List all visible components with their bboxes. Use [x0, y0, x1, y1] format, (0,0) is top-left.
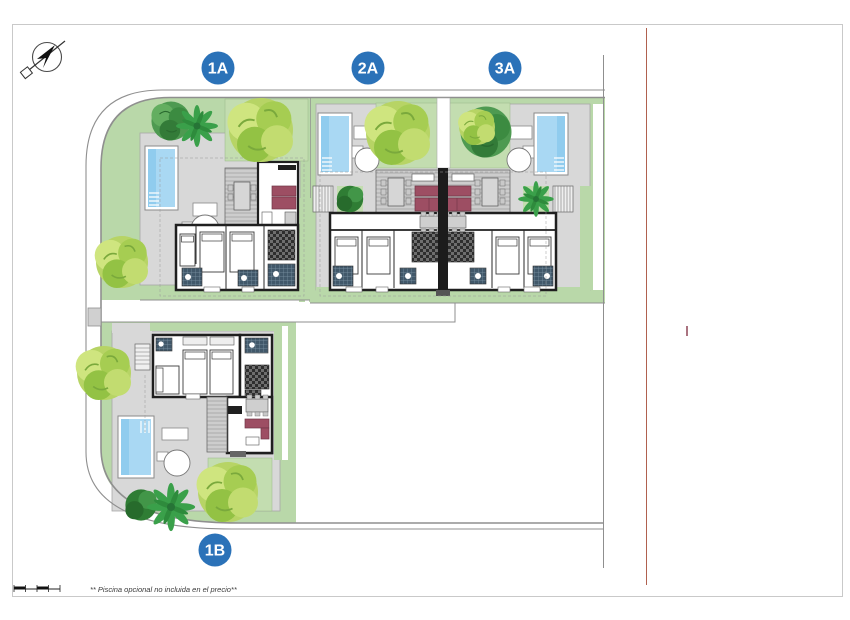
bush-icon [337, 186, 363, 212]
pool-1b [118, 416, 154, 478]
site-plan-drawing: 1A 2A 3A 1B ** Piscina opcional no inclu… [0, 0, 850, 620]
unit-badge-3a-label: 3A [495, 61, 516, 78]
unit-badge-2a-label: 2A [358, 61, 379, 78]
pool-1a [145, 146, 178, 210]
palm-tree-icon [147, 483, 195, 531]
party-wall [436, 98, 450, 296]
entrance-pillar [88, 308, 101, 326]
unit-badge-1b: 1B [199, 534, 232, 567]
footnote: ** Piscina opcional no incluida en el pr… [90, 585, 238, 594]
palm-tree-icon [176, 105, 218, 147]
site-plan-page: 1A 2A 3A 1B ** Piscina opcional no inclu… [0, 0, 850, 620]
palm-tree-icon [518, 181, 554, 217]
unit-badge-1b-label: 1B [205, 543, 225, 560]
unit-badge-1a: 1A [202, 52, 235, 85]
unit-badge-1a-label: 1A [208, 61, 229, 78]
plot-1b-driveway [112, 323, 152, 333]
unit-badge-2a: 2A [352, 52, 385, 85]
unit-badge-3a: 3A [489, 52, 522, 85]
